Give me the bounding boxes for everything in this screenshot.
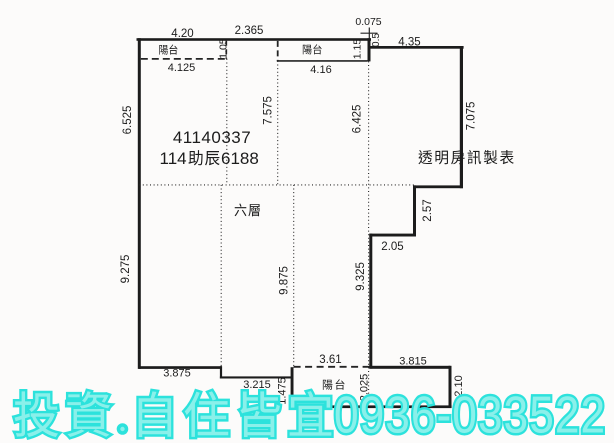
svg-text:9.875: 9.875 [279,266,291,295]
svg-text:4.20: 4.20 [171,28,193,40]
svg-text:6.525: 6.525 [122,106,134,135]
svg-text:2.57: 2.57 [422,199,434,221]
svg-text:0.5: 0.5 [371,33,382,47]
svg-text:7.575: 7.575 [263,96,275,125]
svg-text:0936-033522: 0936-033522 [334,386,606,443]
svg-text:7.075: 7.075 [466,102,478,131]
svg-text:6.425: 6.425 [352,105,364,134]
svg-text:1.15: 1.15 [352,39,364,60]
svg-text:4.16: 4.16 [310,64,331,76]
svg-text:9.275: 9.275 [120,255,132,284]
svg-text:2.365: 2.365 [235,25,264,37]
svg-text:3.61: 3.61 [319,354,341,366]
svg-text:9.325: 9.325 [355,262,367,291]
svg-text:4.125: 4.125 [168,62,196,74]
svg-text:41140337: 41140337 [173,128,251,147]
svg-text:6188: 6188 [221,149,259,168]
svg-text:0.075: 0.075 [355,16,381,28]
svg-text:4.35: 4.35 [398,37,420,49]
svg-text:3.815: 3.815 [399,355,427,367]
svg-text:3.875: 3.875 [163,367,191,379]
svg-text:2.05: 2.05 [381,241,403,253]
svg-text:1.05: 1.05 [217,38,229,59]
svg-text:114: 114 [160,149,187,168]
